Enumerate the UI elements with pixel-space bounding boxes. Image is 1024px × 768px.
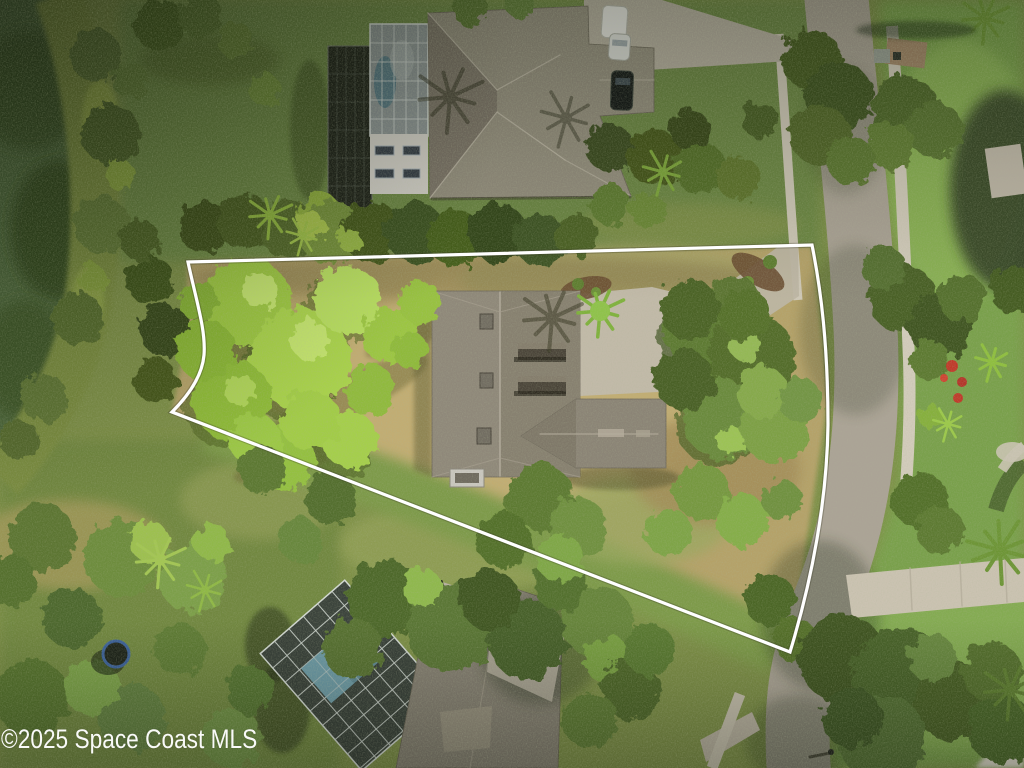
- aerial-photo: ©2025 Space Coast MLS: [0, 0, 1024, 768]
- film-grain: [0, 0, 1024, 768]
- aerial-scene: [0, 0, 1024, 768]
- watermark-copyright: ©2025 Space Coast MLS: [1, 726, 257, 753]
